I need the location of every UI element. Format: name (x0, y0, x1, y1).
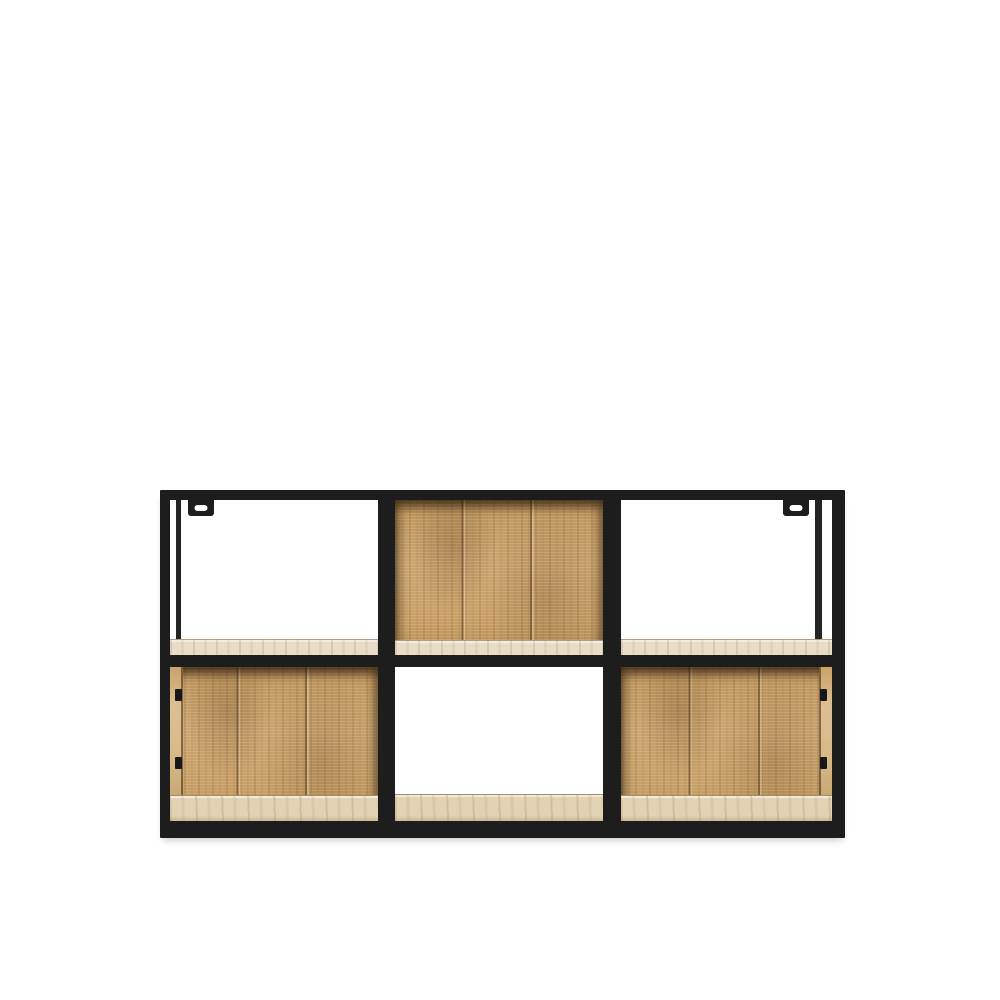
frame-rear-post (176, 500, 181, 641)
frame-rear-post (815, 500, 822, 641)
wood-shelf-surface (170, 639, 378, 655)
mounting-bracket-top-left (188, 500, 214, 516)
shelf-cube-bottom-right (621, 667, 832, 821)
shelf-cube-bottom-left (170, 667, 378, 821)
wood-side-panel (819, 667, 832, 797)
wood-shelf-surface (621, 795, 832, 821)
wood-side-panel (170, 667, 183, 797)
shelf-cube-top-middle (395, 500, 603, 655)
wood-shelf-surface (395, 640, 603, 655)
bracket-screw-slot (790, 505, 803, 511)
panel-clip (175, 757, 182, 769)
panel-clip (820, 757, 827, 769)
wood-shelf-surface (170, 795, 378, 821)
shelf-cube-bottom-middle (395, 667, 603, 821)
panel-clip (820, 689, 827, 701)
wood-shelf-surface (621, 639, 832, 655)
product-photo (0, 0, 1000, 1000)
wood-shelf-surface (395, 794, 603, 821)
mounting-bracket-top-right (783, 500, 809, 516)
bracket-screw-slot (195, 505, 208, 511)
shelf-cube-top-left (170, 500, 378, 655)
panel-clip (175, 689, 182, 701)
wall-shelf-unit (160, 490, 845, 838)
shelf-cube-top-right (621, 500, 832, 655)
